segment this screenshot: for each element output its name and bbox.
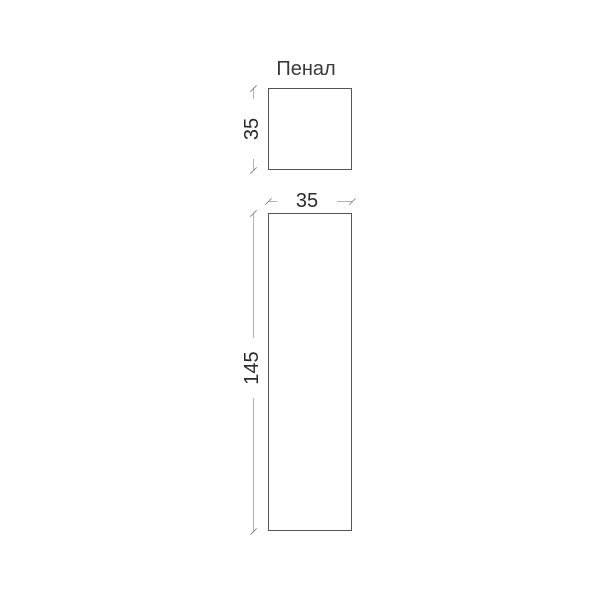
front-view-outline [268,213,352,531]
top-view-depth-label: 35 [241,99,263,159]
front-view-height-label: 145 [241,338,263,398]
dimension-line-segment [253,398,254,531]
drawing-title: Пенал [264,57,348,81]
furniture-dimension-drawing: Пенал 35 35 145 [0,0,600,600]
front-view-width-label: 35 [277,190,337,212]
top-view-outline [268,88,352,170]
dimension-tick-icon [250,167,257,174]
dimension-line-segment [253,213,254,340]
dimension-tick-icon [349,198,356,205]
dimension-tick-icon [250,528,257,535]
